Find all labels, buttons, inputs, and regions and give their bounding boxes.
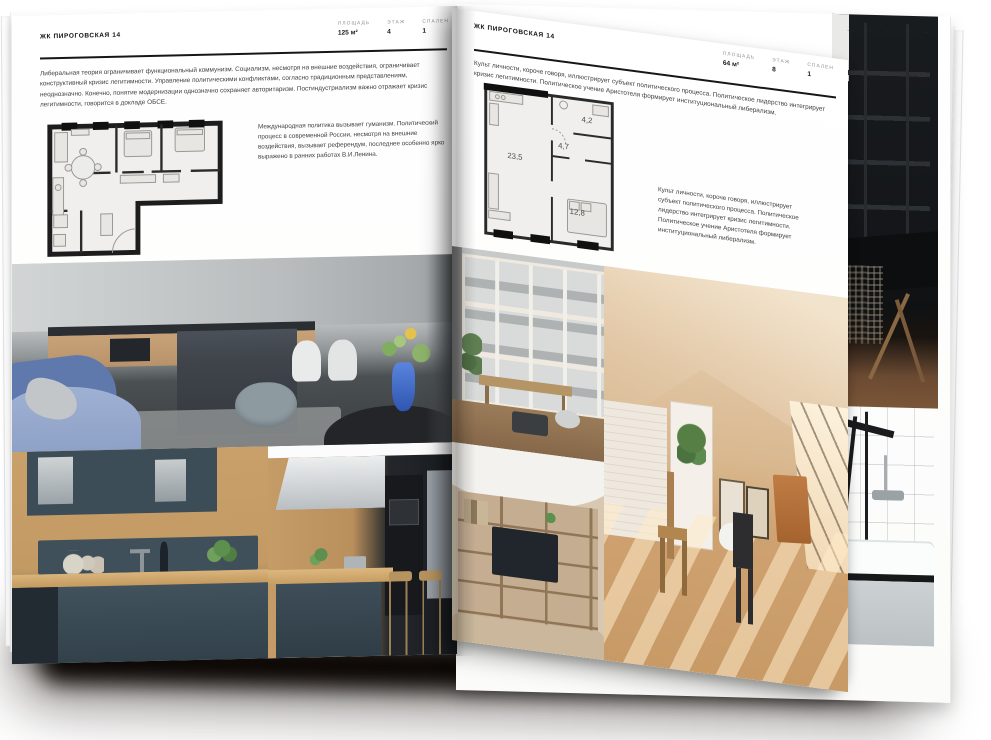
photo-window-view: [452, 246, 618, 464]
jars-shape: [63, 550, 104, 574]
wood-chair-leg-shape: [660, 537, 665, 593]
black-chair-back-shape: [733, 512, 753, 570]
stat-value: 8: [772, 66, 790, 75]
white-chair-shape: [292, 340, 321, 382]
right-plan-caption: Культ личности, короче говоря, иллюстрир…: [658, 185, 810, 255]
stat-label: ЭТАЖ: [387, 20, 405, 25]
plant-shape: [310, 545, 333, 570]
leather-chair-shape: [773, 475, 812, 545]
stat-value: 125 м²: [338, 29, 370, 37]
wood-chair-leg-shape: [682, 540, 687, 596]
photo-kitchen-hood: [268, 454, 457, 658]
stat-floor: ЭТАЖ 4: [387, 20, 405, 35]
wood-chair-back-shape: [667, 471, 673, 558]
tv-shape: [492, 526, 559, 582]
photo-bathroom: [834, 406, 934, 647]
right-page-header: ЖК ПИРОГОВСКАЯ 14: [474, 23, 555, 41]
books-shape: [464, 499, 488, 526]
plant-shape: [207, 536, 238, 566]
tub-panel-shape: [834, 580, 934, 647]
stat-value: 64 м²: [723, 60, 755, 71]
stat-label: ПЛОЩАДЬ: [338, 21, 370, 27]
stat-bedrooms: СПАЛЕН 1: [422, 19, 449, 35]
right-page: ЖК ПИРОГОВСКАЯ 14 ПЛОЩАДЬ 64 м² ЭТАЖ 8 С…: [452, 8, 848, 692]
oven-shape: [110, 338, 150, 361]
room-area-bath: 4,2: [582, 115, 593, 125]
stat-area: ПЛОЩАДЬ 125 м²: [338, 21, 370, 37]
left-page-header: ЖК ПИРОГОВСКАЯ 14: [40, 32, 121, 41]
island-base-shape: [276, 582, 382, 658]
photo-shelving-tv: [452, 442, 604, 660]
magazine-mockup: ЖК ПИРОГОВСКАЯ 14 ПЛОЩАДЬ 125 м² ЭТАЖ 4 …: [0, 0, 991, 740]
header-rule: [40, 48, 447, 59]
vase-shape: [392, 362, 414, 411]
floor-plan-right: 23,5 4,7 4,2 12,8: [476, 77, 622, 258]
stool-legs-shape: [389, 580, 453, 655]
open-shelf-shape: [12, 587, 58, 664]
stat-value: 1: [807, 71, 834, 82]
photo-attic-room: [604, 266, 848, 692]
hood-shape: [276, 456, 386, 510]
white-chair-shape: [328, 339, 357, 381]
left-page: ЖК ПИРОГОВСКАЯ 14 ПЛОЩАДЬ 125 м² ЭТАЖ 4 …: [12, 6, 457, 664]
room-area-hall: 4,7: [558, 141, 569, 151]
left-intro-paragraph: Либеральная теория ограничивает функцион…: [40, 60, 442, 111]
stat-value: 1: [422, 27, 449, 35]
glass-pane-shape: [38, 457, 74, 504]
stat-value: 4: [387, 28, 405, 35]
stat-area: ПЛОЩАДЬ 64 м²: [723, 52, 755, 71]
plant-shape: [543, 507, 558, 529]
left-plan-caption: Международная политика вызывает гуманизм…: [258, 118, 454, 163]
mesh-cage-shape: [843, 265, 883, 344]
floor-plan-left: [42, 113, 228, 259]
shower-pipe-shape: [884, 455, 887, 493]
stat-label: СПАЛЕН: [807, 63, 834, 72]
bottle-shape: [160, 542, 168, 572]
shower-mixer-shape: [872, 490, 904, 500]
stat-floor: ЭТАЖ 8: [772, 58, 790, 75]
chair-leg-shape: [895, 299, 926, 383]
stat-label: СПАЛЕН: [422, 19, 449, 25]
glass-pane-shape: [155, 459, 186, 502]
bathtub-shape: [834, 539, 934, 577]
left-page-stats: ПЛОЩАДЬ 125 м² ЭТАЖ 4 СПАЛЕН 1: [338, 19, 449, 37]
plant-shape: [677, 417, 706, 484]
black-chair-leg-shape: [748, 569, 753, 625]
stool-shape: [419, 570, 442, 581]
stat-bedrooms: СПАЛЕН 1: [807, 63, 834, 82]
right-page-stats: ПЛОЩАДЬ 64 м² ЭТАЖ 8 СПАЛЕН 1: [723, 52, 834, 82]
photo-kitchen-living: [12, 254, 457, 452]
shelf-lines-shape: [840, 30, 929, 268]
oven-glass-shape: [389, 499, 419, 526]
stool-shape: [389, 571, 412, 582]
black-chair-leg-shape: [736, 567, 741, 623]
faucet-shape: [130, 549, 150, 554]
shelf-post-shape: [864, 23, 867, 274]
stat-label: ЭТАЖ: [772, 58, 790, 65]
rug-shape: [128, 407, 342, 449]
photo-kitchen-slate: [12, 446, 268, 664]
